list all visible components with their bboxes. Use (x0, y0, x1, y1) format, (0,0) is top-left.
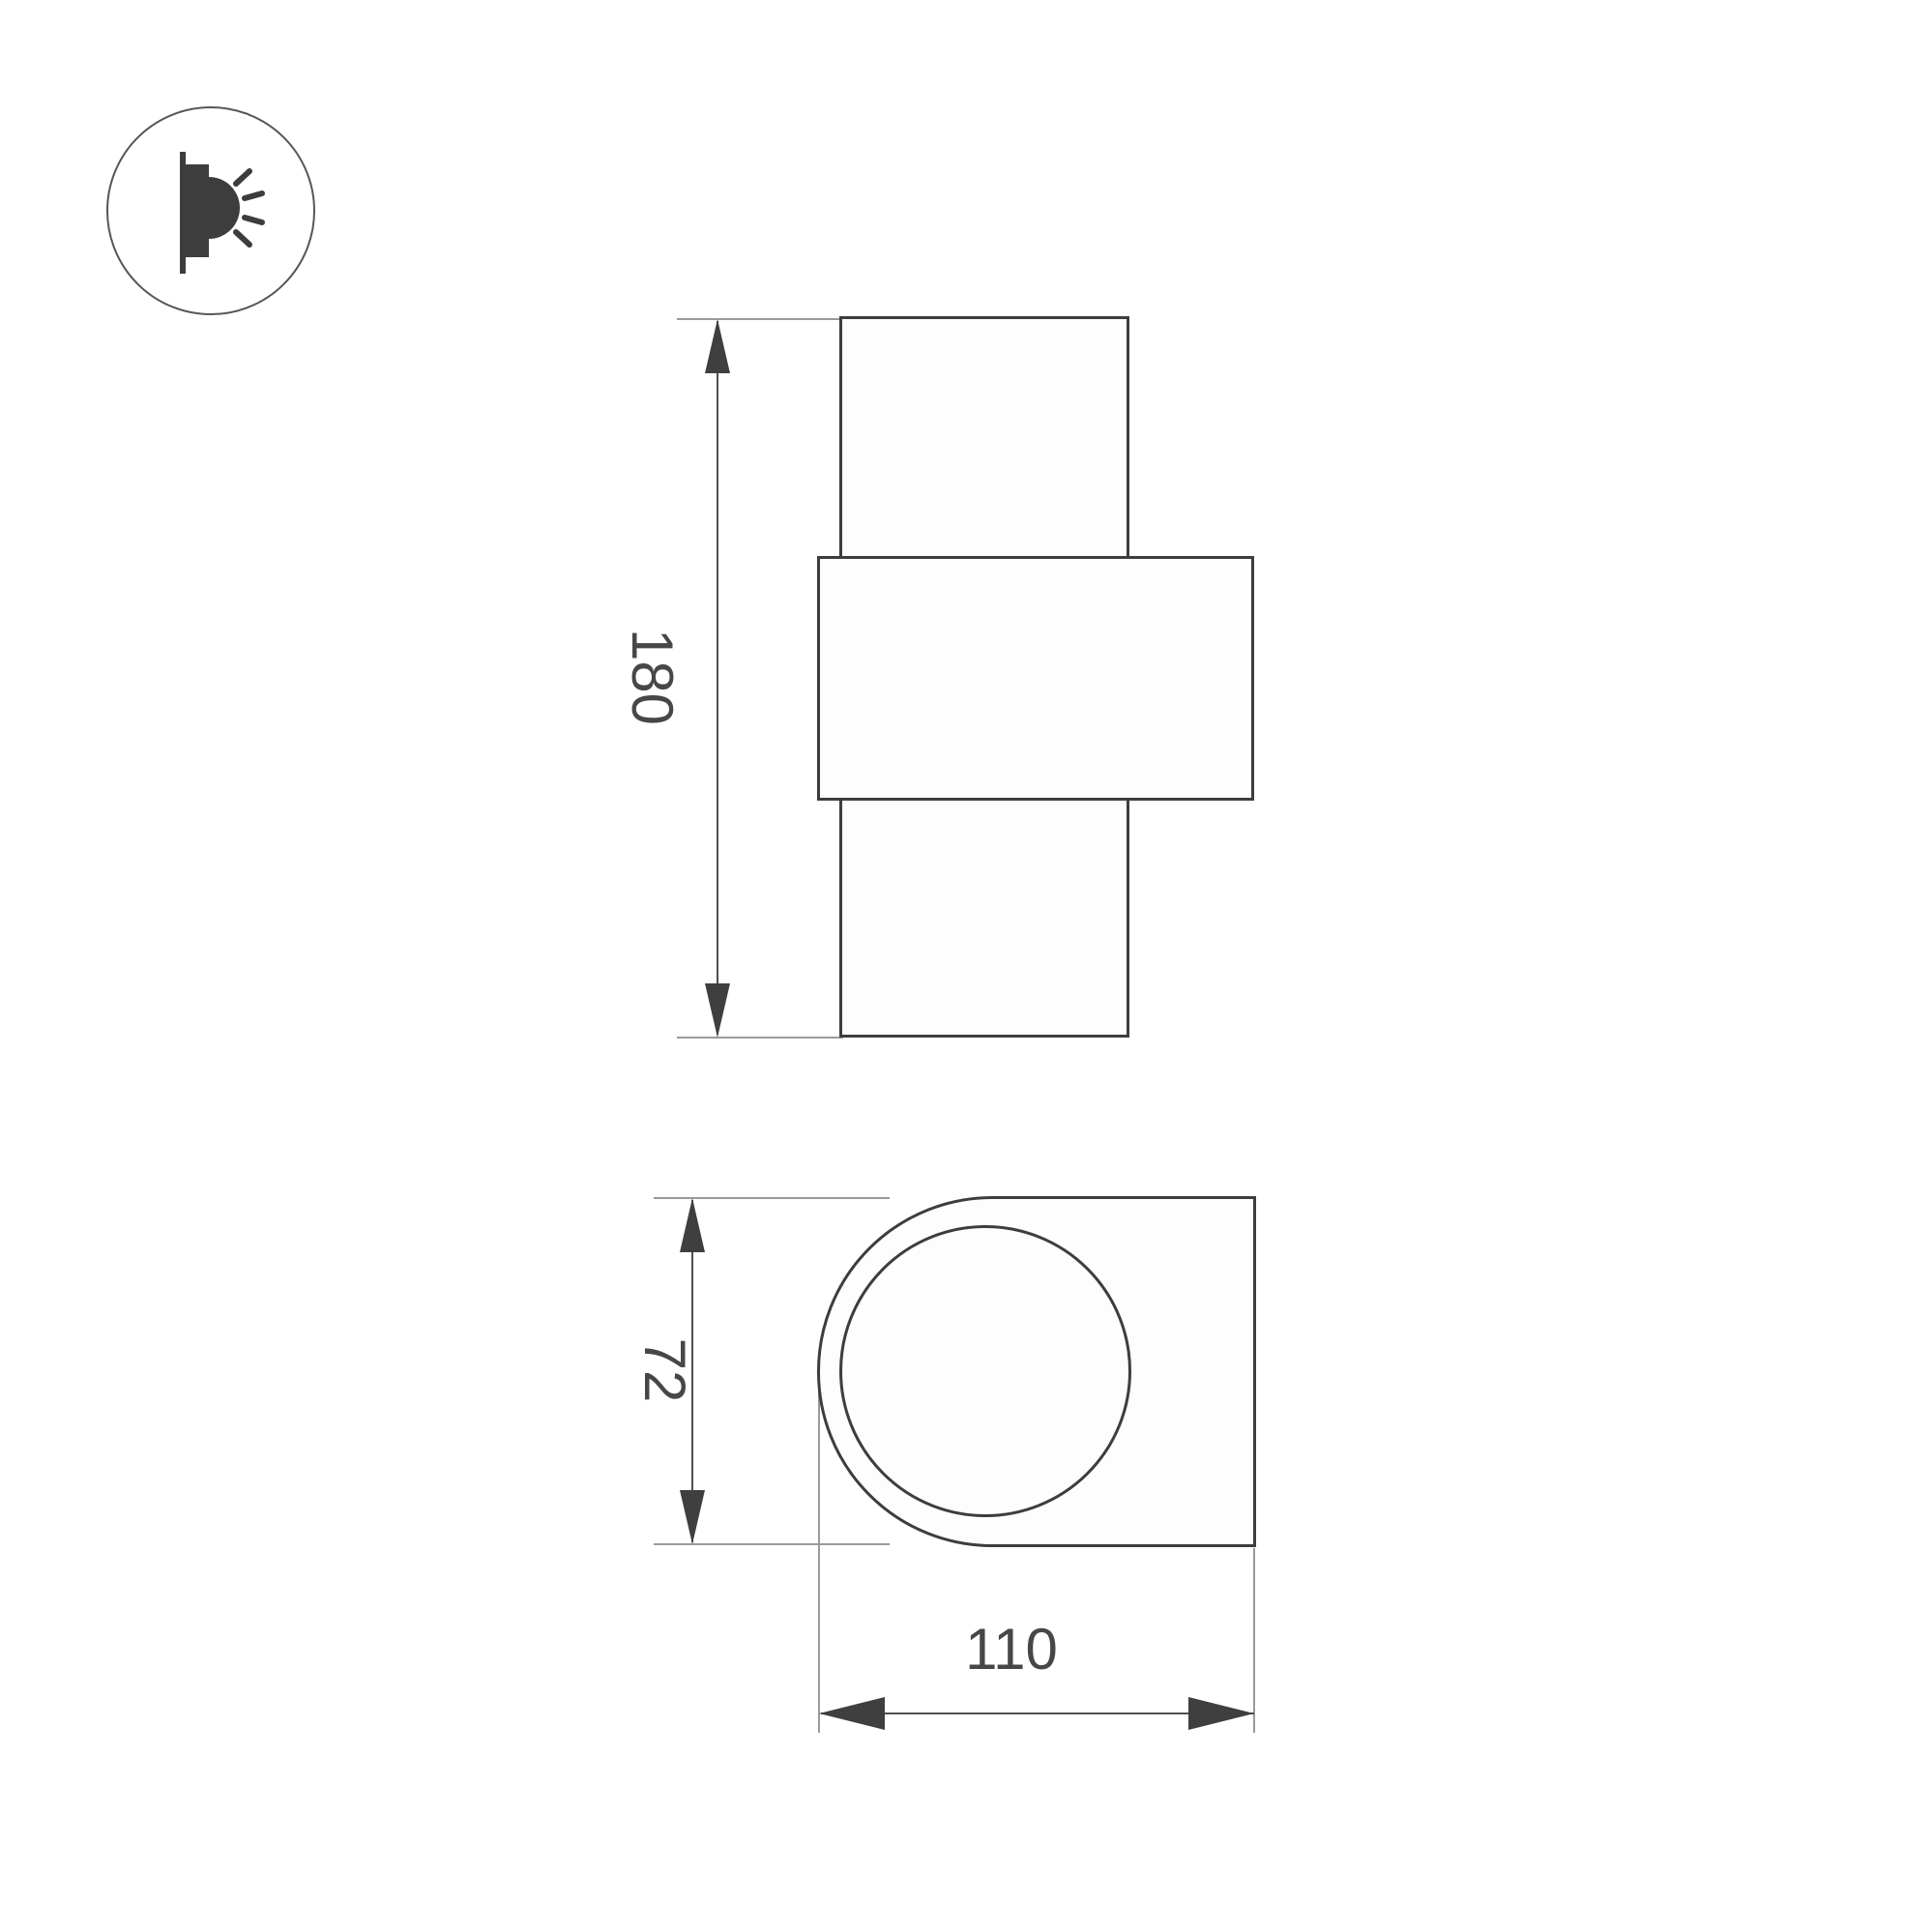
depth-arrow-up-icon (680, 1198, 705, 1252)
icon-lamp-body (186, 164, 209, 257)
front-view-body (817, 556, 1254, 801)
dimension-label-depth: 72 (635, 1338, 693, 1403)
height-arrow-down-icon (705, 983, 730, 1038)
depth-arrow-down-icon (680, 1490, 705, 1544)
wall-light-icon (102, 102, 319, 319)
width-extension-line-left (818, 1381, 820, 1733)
dimension-label-height: 180 (623, 629, 681, 725)
icon-light-rays (236, 171, 262, 245)
technical-drawing-canvas: 180 72 110 (0, 0, 1932, 1932)
wall-light-icon-svg (102, 102, 319, 319)
height-arrow-up-icon (705, 319, 730, 373)
width-arrow-right-icon (1188, 1697, 1254, 1730)
height-extension-line-bottom (677, 1037, 843, 1039)
dimension-label-width: 110 (965, 1621, 1058, 1679)
width-arrow-left-icon (819, 1697, 885, 1730)
height-dimension-line (717, 321, 718, 1035)
icon-wall-line (180, 152, 186, 274)
side-view-tube-circle (839, 1225, 1131, 1517)
height-extension-line-top (677, 318, 843, 320)
